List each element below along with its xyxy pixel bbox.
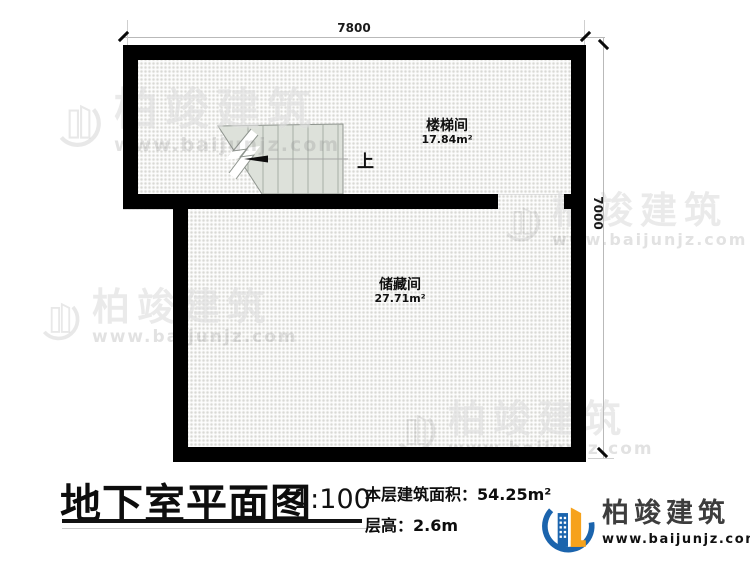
extension-line <box>584 20 585 45</box>
drawing-scale: 1:100 <box>293 484 371 515</box>
title-underline <box>62 519 362 523</box>
brand-name: 柏竣建筑 <box>602 498 750 530</box>
wall-left-upper <box>123 45 138 209</box>
title-underline-shadow <box>62 528 368 529</box>
staircase <box>210 104 370 196</box>
floor-area-info: 本层建筑面积：54.25m² <box>365 481 551 505</box>
room-label-storage: 储藏间 27.71m² <box>356 277 444 306</box>
wall-top <box>123 45 586 60</box>
wall-right <box>571 45 586 462</box>
floor-height-label: 层高： <box>365 516 413 535</box>
wall-left-lower <box>173 194 188 462</box>
dimension-line-right <box>603 37 604 458</box>
watermark-logo-icon <box>52 96 106 150</box>
dimension-line-top <box>123 37 605 38</box>
room-area: 27.71m² <box>356 293 444 306</box>
watermark-logo-icon <box>36 295 84 343</box>
floor-height-info: 层高：2.6m <box>365 512 458 536</box>
brand-logo: 柏竣建筑 www.baijunjz.com <box>538 498 750 560</box>
room-area: 17.84m² <box>405 134 489 147</box>
brand-logo-icon <box>538 498 598 560</box>
brand-url: www.baijunjz.com <box>602 532 750 547</box>
dimension-value-top: 7800 <box>330 21 378 35</box>
storage-room-floor <box>173 194 586 462</box>
floor-area-label: 本层建筑面积： <box>365 485 477 504</box>
wall-bottom <box>173 447 586 462</box>
floor-height-value: 2.6m <box>413 516 458 535</box>
extension-line <box>588 458 614 459</box>
stair-up-label: 上 <box>357 147 374 172</box>
dimension-value-right: 7000 <box>591 193 605 233</box>
wall-divider-stub <box>564 194 586 209</box>
room-name: 楼梯间 <box>405 118 489 134</box>
room-label-stairwell: 楼梯间 17.84m² <box>405 118 489 147</box>
room-name: 储藏间 <box>356 277 444 293</box>
